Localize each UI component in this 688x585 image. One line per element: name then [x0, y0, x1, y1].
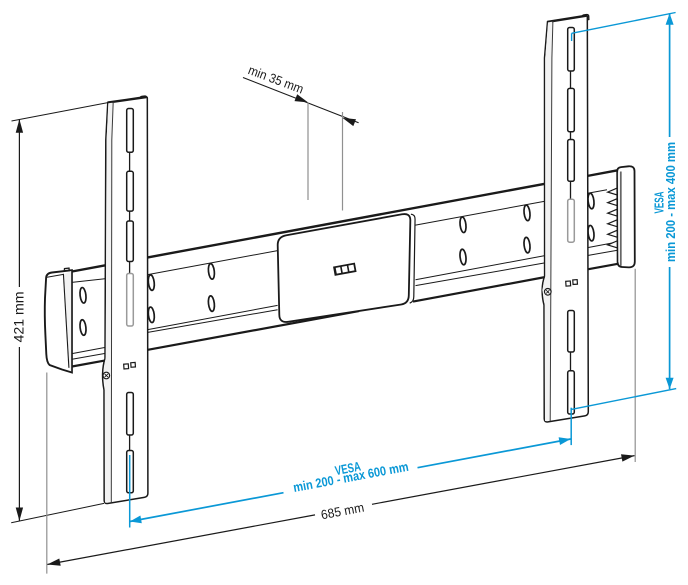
svg-text:min 200 - max 400 mm: min 200 - max 400 mm — [663, 142, 678, 262]
svg-text:421 mm: 421 mm — [11, 292, 27, 343]
